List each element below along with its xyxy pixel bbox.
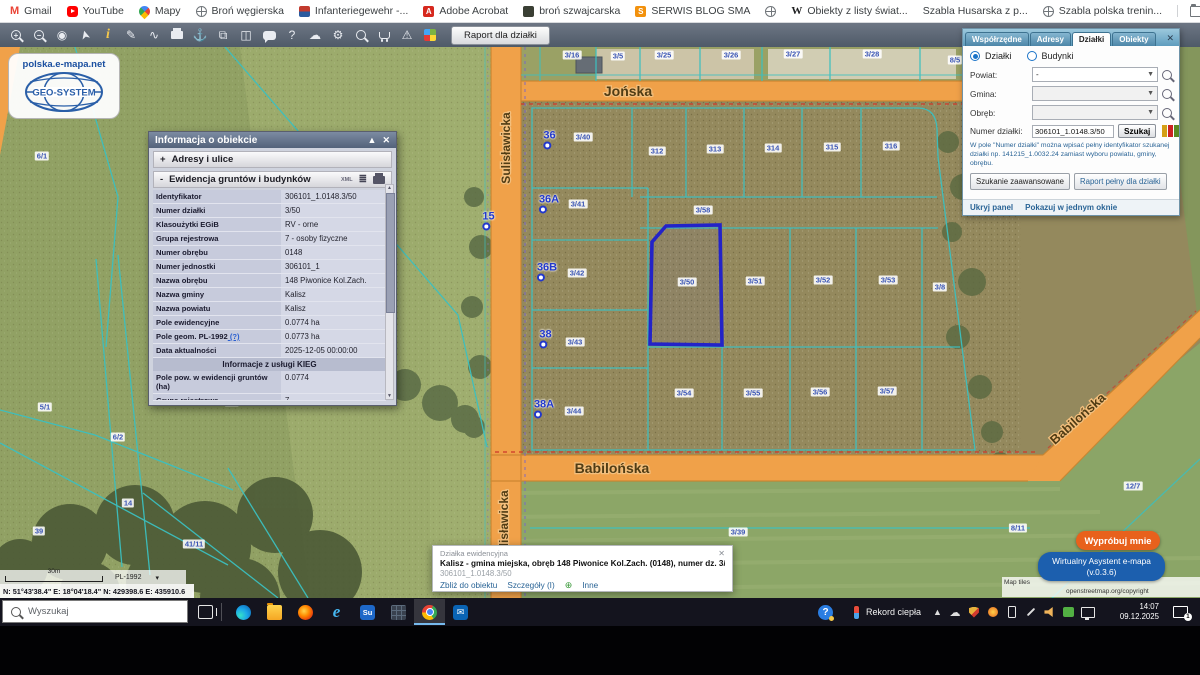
info-row: Numer działki3/50	[153, 204, 386, 218]
info-row-label: Numer obrębu	[153, 246, 281, 259]
section-adresy[interactable]: + Adresy i ulice	[153, 151, 392, 168]
search-icon[interactable]	[1162, 108, 1172, 118]
close-icon[interactable]: ✕	[1163, 33, 1177, 46]
bookmark-item[interactable]: Szabla polska trenin...	[1043, 5, 1162, 17]
bookmark-label: Infanteriegewehr -...	[315, 5, 408, 17]
download-icon[interactable]: ⚓	[190, 25, 210, 45]
info-row-label: Grupa rejestrowa	[153, 394, 281, 400]
crs-selector[interactable]: PL-1992▾	[115, 574, 159, 582]
obreb-select[interactable]: ▼	[1032, 105, 1158, 120]
tab-dzialki[interactable]: Działki	[1072, 32, 1111, 46]
settings-icon[interactable]: ⚙	[328, 25, 348, 45]
bookmark-label: broń szwajcarska	[539, 5, 620, 17]
info-row-label: Pole ewidencyjne	[153, 316, 281, 329]
grid-taskbar-icon[interactable]	[383, 599, 414, 625]
info-row: Nazwa gminyKalisz	[153, 288, 386, 302]
globe-favicon	[196, 6, 207, 17]
street-label-jonska: Jońska	[604, 83, 652, 99]
info-row-label: Nazwa obrębu	[153, 274, 281, 287]
object-info-popup: Informacja o obiekcie ▲ ✕ + Adresy i uli…	[148, 131, 397, 406]
info-row-value: 7 - osoby fizyczne	[281, 232, 386, 245]
panel-tabs: Współrzędne Adresy Działki Obiekty ✕	[963, 29, 1179, 46]
info-row: Grupa rejestrowa7	[153, 394, 386, 401]
tab-adresy[interactable]: Adresy	[1030, 32, 1071, 46]
bookmark-item[interactable]: Broń węgierska	[196, 5, 284, 17]
defender-tray-icon[interactable]	[967, 605, 981, 619]
ie-taskbar-icon[interactable]: e	[321, 599, 352, 625]
info-row: Numer obrębu0148	[153, 246, 386, 260]
close-icon[interactable]: ✕	[718, 549, 725, 558]
updates-tray-icon[interactable]	[986, 605, 1000, 619]
taskbar-clock[interactable]: 14:07 09.12.2025	[1107, 602, 1159, 622]
search-button[interactable]: Szukaj	[1118, 124, 1156, 138]
chevron-down-icon: ▼	[1147, 71, 1154, 78]
object-info-icon[interactable]: i	[98, 25, 118, 45]
bookmark-label: Szabla Husarska z p...	[923, 5, 1028, 17]
tray-overflow-icon[interactable]: ▲	[933, 607, 942, 617]
dark-app-favicon	[523, 6, 534, 17]
help-icon[interactable]: ?	[282, 25, 302, 45]
scale-bar: 30m PL-1992▾	[0, 570, 186, 584]
bookmark-label: YouTube	[83, 5, 124, 17]
zoom-in-icon[interactable]: +	[6, 25, 26, 45]
search-icon[interactable]	[1162, 70, 1172, 80]
popup-titlebar[interactable]: Informacja o obiekcie ▲ ✕	[149, 132, 396, 148]
info-row-value: 0.0774 ha	[281, 316, 386, 329]
info-row-value: Kalisz	[281, 302, 386, 315]
popup-scrollbar[interactable]: ▲ ▼	[385, 184, 394, 400]
help-link[interactable]: (?)	[228, 332, 240, 341]
bookmark-label: Adobe Acrobat	[439, 5, 508, 17]
bookmark-item[interactable]: MGmail	[10, 5, 52, 17]
zoom-out-icon[interactable]: −	[29, 25, 49, 45]
bookmark-label: SERWIS BLOG SMA	[651, 5, 750, 17]
zoom-to-object-link[interactable]: Zbliż do obiektu	[440, 581, 497, 590]
legend-icon[interactable]	[420, 25, 440, 45]
gmina-label: Gmina:	[970, 89, 1028, 99]
scale-bracket: 30m	[5, 576, 103, 582]
portal-url: polska.e-mapa.net	[9, 59, 119, 70]
chevron-down-icon: ▼	[1147, 90, 1154, 97]
geo-system-logo[interactable]: polska.e-mapa.net GEO-SYSTEM	[8, 53, 120, 119]
section-egib[interactable]: - Ewidencja gruntów i budynków XML ≣	[153, 171, 392, 188]
hide-panel-link[interactable]: Ukryj panel	[970, 203, 1013, 212]
info-row-label: Nazwa gminy	[153, 288, 281, 301]
wikipedia-favicon: W	[791, 6, 802, 17]
network-tray-icon[interactable]	[1081, 605, 1095, 619]
section-label: Adresy i ulice	[172, 154, 234, 165]
blog-favicon: S	[635, 6, 646, 17]
bookmark-label: Obiekty z listy świat...	[807, 5, 907, 17]
info-row: Nazwa obrębu148 Piwonice Kol.Zach.	[153, 274, 386, 288]
search-advanced-icon[interactable]	[351, 25, 371, 45]
obreb-label: Obręb:	[970, 108, 1028, 118]
outlook-taskbar-icon[interactable]: ✉	[445, 599, 476, 625]
details-link[interactable]: Szczegóły (I)	[507, 581, 554, 590]
parcel-info-popup: Działka ewidencyjna ✕ Kalisz - gmina mie…	[432, 545, 733, 592]
select-area-icon[interactable]: ◉	[52, 25, 72, 45]
assistant-try-button[interactable]: Wypróbuj mnie	[1076, 531, 1160, 550]
attribution-text: Map tiles	[1004, 579, 1030, 586]
phone-tray-icon[interactable]	[1005, 605, 1019, 619]
popup-kind-label: Działka ewidencyjna	[440, 549, 508, 558]
powiat-select[interactable]: -▼	[1032, 67, 1158, 82]
weather-text[interactable]: Rekord ciepła	[866, 607, 921, 617]
print-icon[interactable]	[373, 176, 385, 184]
info-row-label: Identyfikator	[153, 190, 281, 203]
info-row-value: RV - orne	[281, 218, 386, 231]
info-row: Pole ewidencyjne0.0774 ha	[153, 316, 386, 330]
pointer-icon[interactable]: ➤	[75, 25, 95, 45]
xml-icon[interactable]: XML	[341, 177, 353, 183]
onedrive-tray-icon[interactable]: ☁	[948, 605, 962, 619]
info-row-label: Klasoużytki EGiB	[153, 218, 281, 231]
explorer-taskbar-icon[interactable]	[259, 599, 290, 625]
single-window-link[interactable]: Pokazuj w jednym oknie	[1025, 203, 1117, 212]
search-placeholder: Wyszukaj	[28, 606, 69, 617]
globe-favicon	[1043, 6, 1054, 17]
all-bookmarks-button[interactable]: Wszystkie zakładki	[1177, 5, 1200, 17]
bookmarks-bar: MGmailYouTubeMapyBroń węgierskaInfanteri…	[0, 0, 1200, 23]
virtual-assistant-button[interactable]: Wirtualny Asystent e-mapa (v.0.3.6)	[1038, 552, 1165, 581]
notification-icon[interactable]: 1	[1173, 606, 1188, 618]
section-label: Ewidencja gruntów i budynków	[169, 174, 310, 185]
info-row: Grupa rejestrowa7 - osoby fizyczne	[153, 232, 386, 246]
minimize-icon[interactable]: ▲	[368, 135, 377, 145]
info-row-label: Numer jednostki	[153, 260, 281, 273]
tool-group: +−◉➤i✎∿⚓⧉◫?☁⚙⚠	[6, 25, 440, 45]
youtube-favicon	[67, 6, 78, 17]
parcel-id: 306101_1.0148.3/50	[440, 569, 725, 578]
list-icon[interactable]: ≣	[359, 174, 367, 185]
radio-dzialki[interactable]	[970, 51, 980, 61]
info-row: Nazwa powiatuKalisz	[153, 302, 386, 316]
windows-taskbar: Wyszukaj eSu✉ ? Rekord ciepła ▲ ☁ 14:07 …	[0, 598, 1200, 626]
chevron-down-icon: ▼	[1147, 109, 1154, 116]
parcel-number-label: Numer działki:	[970, 126, 1028, 136]
other-link[interactable]: Inne	[582, 581, 598, 590]
plus-icon[interactable]: ⊕	[565, 580, 573, 591]
info-row-value: 306101_1.0148.3/50	[281, 190, 386, 203]
street-label-sulislawicka: Sulisławicka	[499, 112, 513, 184]
advanced-search-button[interactable]: Szukanie zaawansowane	[970, 173, 1070, 190]
close-icon[interactable]: ✕	[382, 135, 390, 146]
bookmark-item[interactable]: AAdobe Acrobat	[423, 5, 508, 17]
sumatra-taskbar-icon[interactable]: Su	[352, 599, 383, 625]
info-row-value: 306101_1	[281, 260, 386, 273]
info-row-value: 3/50	[281, 204, 386, 217]
popup-title: Informacja o obiekcie	[155, 135, 257, 146]
weather-icon[interactable]	[853, 605, 860, 620]
flag-favicon	[299, 6, 310, 17]
maps-pin-favicon	[137, 3, 153, 19]
info-row-value: 0.0774	[281, 371, 386, 393]
letterbox	[0, 626, 1200, 675]
bookmark-item[interactable]: Mapy	[139, 5, 181, 17]
system-tray: ? Rekord ciepła ▲ ☁ 14:07 09.12.2025 1	[818, 598, 1188, 626]
info-row-value: Kalisz	[281, 288, 386, 301]
edge-taskbar-icon[interactable]	[228, 599, 259, 625]
comment-icon[interactable]	[259, 25, 279, 45]
globe-logo-icon: GEO-SYSTEM	[22, 70, 106, 114]
info-row-label: Numer działki	[153, 204, 281, 217]
svg-text:GEO-SYSTEM: GEO-SYSTEM	[32, 88, 95, 99]
chevron-down-icon: ▾	[155, 574, 159, 582]
info-row-value: 148 Piwonice Kol.Zach.	[281, 274, 386, 287]
link-icon[interactable]: ∿	[144, 25, 164, 45]
info-row-label: Data aktualności	[153, 344, 281, 357]
info-row-label: Pole geom. PL-1992 (?)	[153, 330, 281, 343]
bookmark-item[interactable]: Szabla Husarska z p...	[923, 5, 1028, 17]
search-icon	[11, 607, 21, 617]
bookmark-item[interactable]: SSERWIS BLOG SMA	[635, 5, 750, 17]
info-section-header: Informacje z usługi KIEG	[153, 358, 386, 371]
report-parcel-button[interactable]: Raport dla działki	[451, 26, 550, 45]
globe-favicon	[765, 6, 776, 17]
info-row: Numer jednostki306101_1	[153, 260, 386, 274]
layout-icon[interactable]: ◫	[236, 25, 256, 45]
chrome-taskbar-icon[interactable]	[414, 599, 445, 625]
task-view-icon[interactable]	[198, 605, 213, 619]
cloud-upload-icon[interactable]: ☁	[305, 25, 325, 45]
warnings-icon[interactable]: ⚠	[397, 25, 417, 45]
coordinates-readout: N: 51°43'38.4" E: 18°04'18.4" N: 429398.…	[0, 584, 194, 598]
bookmark-label: Szabla polska trenin...	[1059, 5, 1162, 17]
teams-tray-icon[interactable]	[1062, 605, 1076, 619]
street-label-babilonska: Babilońska	[575, 460, 650, 476]
taskbar-apps: eSu✉	[228, 599, 476, 625]
bookmark-item[interactable]: WObiekty z listy świat...	[791, 5, 907, 17]
gmina-select[interactable]: ▼	[1032, 86, 1158, 101]
info-row-label: Pole pow. w ewidencji gruntów (ha)	[153, 371, 281, 393]
radio-label[interactable]: Budynki	[1042, 51, 1074, 61]
info-row: Data aktualności2025-12-05 00:00:00	[153, 344, 386, 358]
help-icon[interactable]: ?	[818, 605, 833, 620]
info-row-label: Nazwa powiatu	[153, 302, 281, 315]
radio-label[interactable]: Działki	[985, 51, 1012, 61]
gmail-favicon: M	[10, 6, 19, 17]
search-icon[interactable]	[1162, 89, 1172, 99]
acrobat-favicon: A	[423, 6, 434, 17]
bookmark-item[interactable]	[765, 6, 776, 17]
firefox-taskbar-icon[interactable]	[290, 599, 321, 625]
taskbar-search[interactable]: Wyszukaj	[2, 600, 188, 623]
desktop-screen: MGmailYouTubeMapyBroń węgierskaInfanteri…	[0, 0, 1200, 675]
selected-parcel-outline[interactable]	[650, 225, 722, 345]
folder-icon	[1190, 6, 1200, 17]
bookmark-item[interactable]: broń szwajcarska	[523, 5, 620, 17]
pen-tray-icon[interactable]	[1024, 605, 1038, 619]
measure-icon[interactable]: ✎	[121, 25, 141, 45]
info-row: Klasoużytki EGiBRV - orne	[153, 218, 386, 232]
tab-obiekty[interactable]: Obiekty	[1112, 32, 1155, 46]
bookmark-item[interactable]: YouTube	[67, 5, 124, 17]
parcel-description: Kalisz - gmina miejska, obręb 148 Piwoni…	[440, 559, 725, 568]
notification-badge: 1	[1184, 613, 1192, 621]
info-row: Pole pow. w ewidencji gruntów (ha)0.0774	[153, 371, 386, 394]
full-report-button[interactable]: Raport pełny dla działki	[1074, 173, 1167, 190]
info-row-label: Grupa rejestrowa	[153, 232, 281, 245]
bookmark-label: Broń węgierska	[212, 5, 284, 17]
copy-view-icon[interactable]: ⧉	[213, 25, 233, 45]
cart-icon[interactable]	[374, 25, 394, 45]
info-row-value: 0.0773 ha	[281, 330, 386, 343]
bookmark-item[interactable]: Infanteriegewehr -...	[299, 5, 408, 17]
info-row-value: 7	[281, 394, 386, 400]
building	[576, 57, 602, 73]
info-row: Identyfikator306101_1.0148.3/50	[153, 190, 386, 204]
attribute-table: Identyfikator306101_1.0148.3/50Numer dzi…	[153, 190, 386, 401]
search-panel: Współrzędne Adresy Działki Obiekty ✕ Dzi…	[962, 28, 1180, 216]
info-row-value: 2025-12-05 00:00:00	[281, 344, 386, 357]
layer-color-indicator	[1162, 125, 1179, 137]
attribution-link[interactable]: openstreetmap.org/copyright	[1066, 588, 1149, 595]
print-icon[interactable]	[167, 25, 187, 45]
info-row: Pole geom. PL-1992 (?)0.0773 ha	[153, 330, 386, 344]
info-row-value: 0148	[281, 246, 386, 259]
powiat-label: Powiat:	[970, 70, 1028, 80]
parcel-number-input[interactable]	[1032, 125, 1114, 138]
bookmark-label: Mapy	[155, 5, 181, 17]
tab-wspolrzedne[interactable]: Współrzędne	[965, 32, 1029, 46]
volume-tray-icon[interactable]	[1043, 605, 1057, 619]
bookmark-label: Gmail	[24, 5, 51, 17]
radio-budynki[interactable]	[1027, 51, 1037, 61]
search-hint: W pole "Numer działki" można wpisać pełn…	[970, 142, 1172, 168]
